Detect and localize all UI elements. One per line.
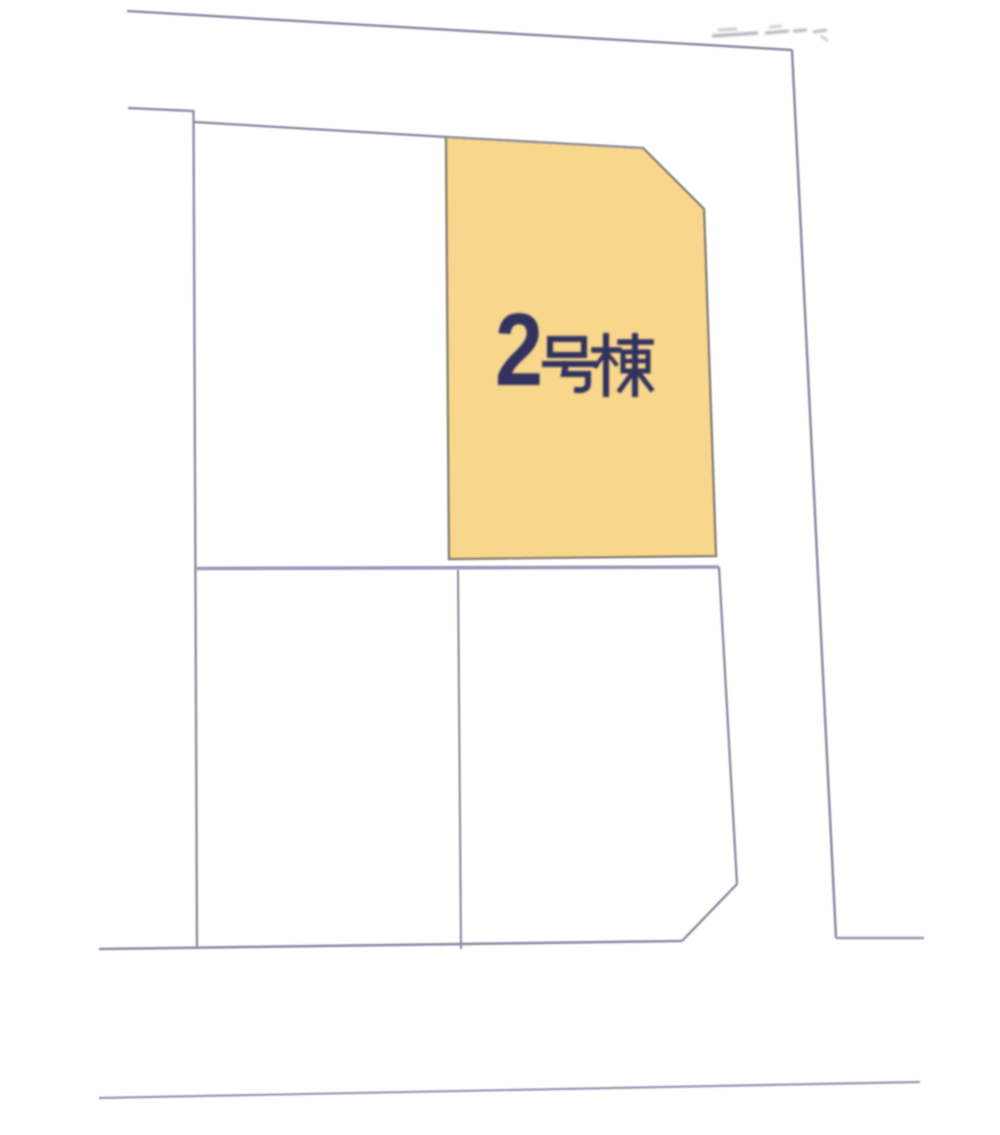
svg-text:2: 2 [495,292,543,407]
